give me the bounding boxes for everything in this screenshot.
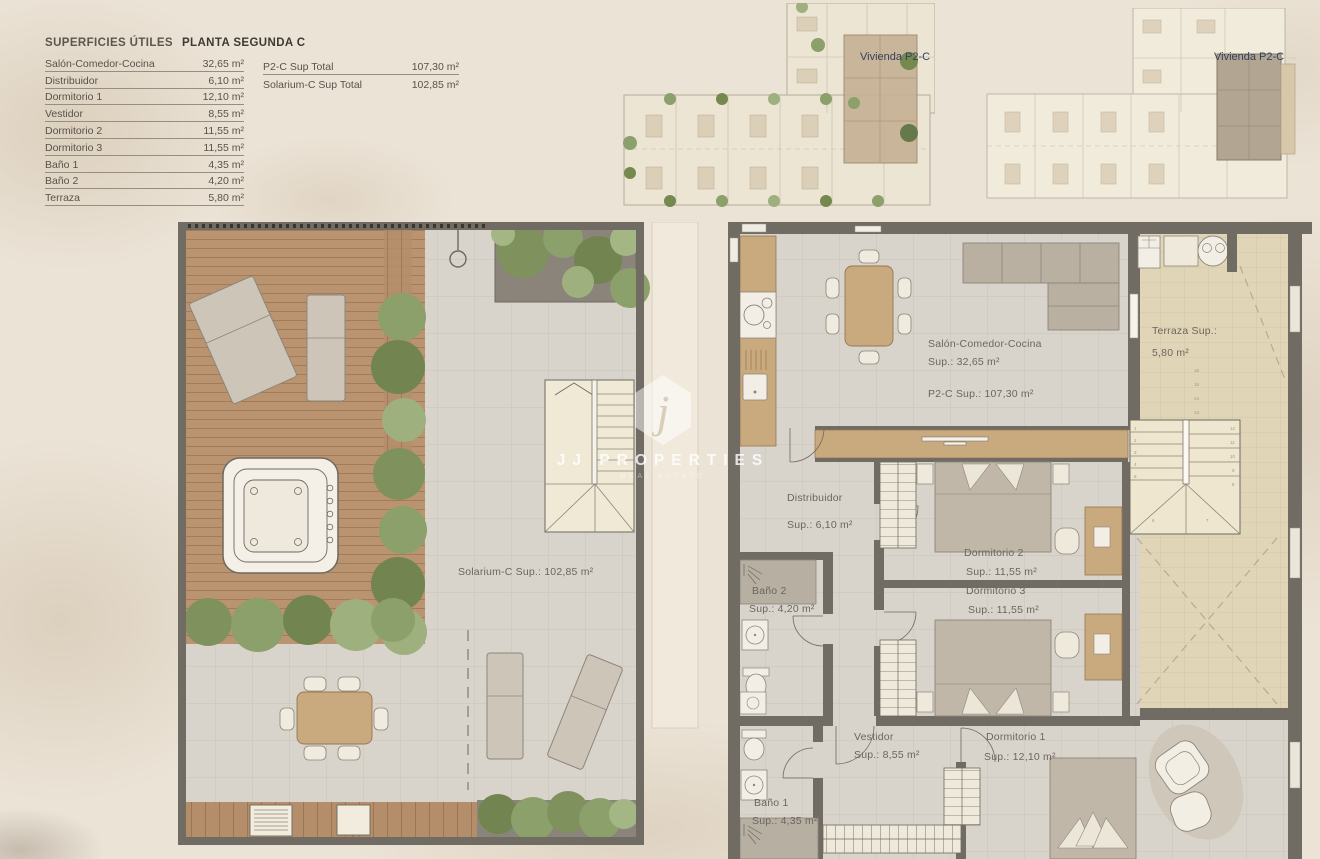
room-name: Baño 1 <box>45 159 78 171</box>
svg-text:11: 11 <box>1230 440 1235 445</box>
overview-plan-2: Vivienda P2-C <box>985 8 1297 200</box>
sheet-title: SUPERFICIES ÚTILES <box>45 37 173 49</box>
apartment-plan: 1 2 3 4 5 6 7 8 9 10 11 12 13 14 15 16 <box>728 222 1312 859</box>
room-sup-living: Sup.: 32,65 m² <box>928 356 1000 368</box>
bed-dorm1 <box>1050 758 1136 859</box>
floorplan-sheet: { "header": { "title": "SUPERFICIES ÚTIL… <box>0 0 1320 859</box>
svg-text:14: 14 <box>1194 396 1200 401</box>
overview-plan-2-graphic <box>985 8 1297 200</box>
room-name: Baño 2 <box>45 175 78 187</box>
kitchen-counter <box>740 236 776 446</box>
overview-plan-1-label: Vivienda P2-C <box>860 51 930 63</box>
totals-table: P2-C Sup Total107,30 m² Solarium-C Sup T… <box>263 57 459 92</box>
room-area: 4,20 m² <box>208 175 244 187</box>
adjacent-roof-strip <box>652 222 698 728</box>
room-label-terraza: Terraza Sup.: <box>1152 325 1217 337</box>
room-sup-bano1: Sup.: 4,35 m² <box>752 815 818 827</box>
sheet-subtitle: PLANTA SEGUNDA C <box>182 37 306 49</box>
total-value: 107,30 m² <box>412 61 459 73</box>
room-area: 11,55 m² <box>203 125 244 137</box>
total-row: P2-C Sup Total107,30 m² <box>263 57 459 75</box>
total-label: Solarium-C Sup Total <box>263 79 362 91</box>
svg-text:15: 15 <box>1194 382 1200 387</box>
room-area: 5,80 m² <box>208 192 244 204</box>
total-row: Solarium-C Sup Total102,85 m² <box>263 75 459 92</box>
washer <box>740 692 766 714</box>
room-label-dorm3: Dormitorio 3 <box>966 585 1026 597</box>
table-row: Terraza5,80 m² <box>45 189 244 206</box>
overview-plan-2-label: Vivienda P2-C <box>1214 51 1284 63</box>
room-area: 6,10 m² <box>208 75 244 87</box>
svg-text:13: 13 <box>1194 410 1200 415</box>
tv-sideboard <box>815 426 1128 462</box>
room-area: 8,55 m² <box>208 108 244 120</box>
room-sup-dorm2: Sup.: 11,55 m² <box>966 566 1037 578</box>
room-sup-dorm3: Sup.: 11,55 m² <box>968 604 1039 616</box>
shower-2 <box>740 560 816 604</box>
room-area: 32,65 m² <box>203 58 244 70</box>
room-name: Dormitorio 3 <box>45 142 102 154</box>
room-name: Distribuidor <box>45 75 98 87</box>
sun-lounger-1 <box>487 653 523 759</box>
service-box <box>337 805 370 835</box>
room-name: Terraza <box>45 192 80 204</box>
room-sup-dorm1: Sup.: 12,10 m² <box>984 751 1056 763</box>
room-label-vestidor: Vestidor <box>854 731 894 743</box>
hot-tub <box>223 458 338 573</box>
living-window <box>1130 294 1138 338</box>
table-row: Distribuidor6,10 m² <box>45 72 244 89</box>
svg-text:10: 10 <box>1230 454 1236 459</box>
table-row: Salón-Comedor-Cocina32,65 m² <box>45 55 244 72</box>
solarium-plan-graphic <box>178 222 700 859</box>
room-sup-bano2: Sup.: 4,20 m² <box>749 603 815 615</box>
table-row: Vestidor8,55 m² <box>45 105 244 122</box>
room-sup-distribuidor: Sup.: 6,10 m² <box>787 519 853 531</box>
room-name: Vestidor <box>45 108 83 120</box>
room-area: 4,35 m² <box>208 159 244 171</box>
room-name: Salón-Comedor-Cocina <box>45 58 155 70</box>
room-name: Dormitorio 2 <box>45 125 102 137</box>
solarium-stairs <box>545 380 634 532</box>
solarium-plan <box>178 222 700 859</box>
surfaces-table: Salón-Comedor-Cocina32,65 m² Distribuido… <box>45 55 244 206</box>
room-name: Dormitorio 1 <box>45 91 102 103</box>
svg-text:12: 12 <box>1230 426 1236 431</box>
room-sup-vestidor: Sup.: 8,55 m² <box>854 749 920 761</box>
room-label-living: Salón-Comedor-Cocina <box>928 338 1042 350</box>
overview-plan-1: Vivienda P2-C <box>622 3 935 207</box>
apartment-plan-graphic: 1 2 3 4 5 6 7 8 9 10 11 12 13 14 15 16 <box>728 222 1312 859</box>
room-total-living: P2-C Sup.: 107,30 m² <box>928 388 1034 400</box>
room-label-dorm2: Dormitorio 2 <box>964 547 1024 559</box>
room-label-distribuidor: Distribuidor <box>787 492 843 504</box>
page-title: SUPERFICIES ÚTILESPLANTA SEGUNDA C <box>45 33 306 51</box>
room-label-bano2: Baño 2 <box>752 585 786 597</box>
room-area: 12,10 m² <box>203 91 244 103</box>
overview-plan-1-graphic <box>622 3 935 207</box>
kitchen-sink <box>743 374 767 400</box>
deck-lounger-2 <box>307 295 345 401</box>
room-label-dorm1: Dormitorio 1 <box>986 731 1046 743</box>
room-sup-terraza: 5,80 m² <box>1152 347 1189 359</box>
total-value: 102,85 m² <box>412 79 459 91</box>
table-row: Baño 14,35 m² <box>45 156 244 173</box>
toilet-1 <box>742 730 766 760</box>
overview-2-highlight-unit <box>1217 54 1295 160</box>
cooktop <box>740 292 776 338</box>
room-label-bano1: Baño 1 <box>754 797 788 809</box>
room-area: 11,55 m² <box>203 142 244 154</box>
table-row: Baño 24,20 m² <box>45 173 244 190</box>
table-row: Dormitorio 112,10 m² <box>45 89 244 106</box>
bed-dorm2 <box>917 462 1069 552</box>
planter-box <box>491 222 650 308</box>
tv <box>922 437 988 441</box>
total-label: P2-C Sup Total <box>263 61 333 73</box>
table-row: Dormitorio 311,55 m² <box>45 139 244 156</box>
svg-text:16: 16 <box>1194 368 1200 373</box>
bed-dorm3 <box>917 620 1069 716</box>
solarium-area-label: Solarium-C Sup.: 102,85 m² <box>458 566 593 578</box>
table-row: Dormitorio 211,55 m² <box>45 122 244 139</box>
